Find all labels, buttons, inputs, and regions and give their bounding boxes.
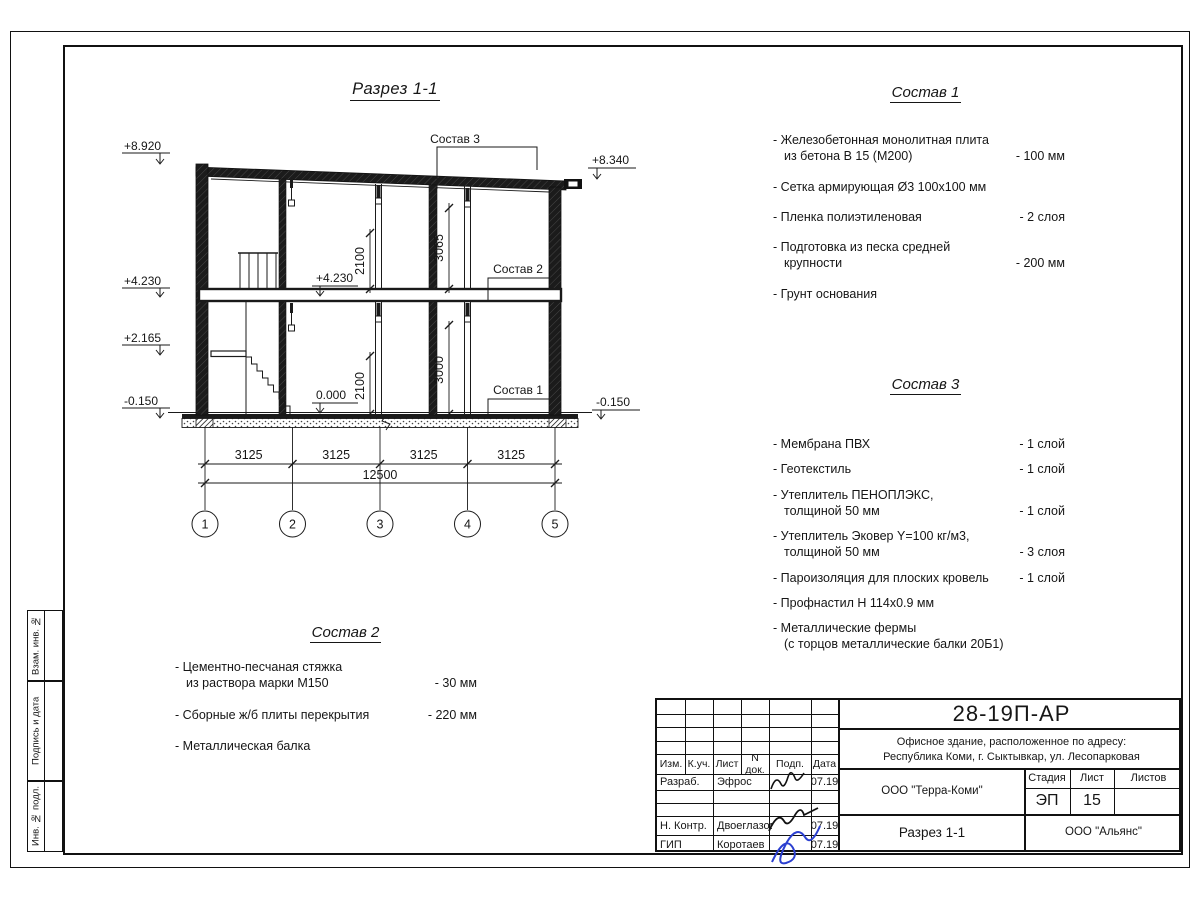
document-number: 28-19П-АР — [840, 700, 1183, 728]
list-item: - Железобетонная монолитная плита из бет… — [773, 132, 1065, 165]
row-role: Разраб. — [657, 774, 716, 790]
sostav2-heading: Состав 2 — [278, 624, 413, 643]
list-item: - Утеплитель ПЕНОПЛЭКС, толщиной 50 мм- … — [773, 487, 1065, 520]
list-item: - Профнастил Н 114х0.9 мм — [773, 595, 1065, 611]
list-item: - Геотекстиль- 1 слой — [773, 461, 1065, 477]
col-header-ndok: N док. — [741, 754, 769, 774]
section-title: Разрез 1-1 — [330, 80, 460, 101]
list-item: - Мембрана ПВХ- 1 слой — [773, 436, 1065, 452]
sostav1-heading: Состав 1 — [858, 84, 993, 103]
list-item: - Грунт основания — [773, 286, 1065, 302]
sostav2-list: - Цементно-песчаная стяжка из раствора м… — [175, 659, 477, 754]
list-item: - Пароизоляция для плоских кровель- 1 сл… — [773, 570, 1065, 586]
row-date: 07.19 — [811, 816, 838, 835]
list-item: - Пленка полиэтиленовая- 2 слоя — [773, 209, 1065, 225]
col-header-podp: Подп. — [769, 754, 811, 774]
design-org: ООО "Терра-Коми" — [840, 768, 1024, 814]
title-block: Изм. К.уч. Лист N док. Подп. Дата Разраб… — [655, 698, 1181, 852]
sheet-name: Разрез 1-1 — [840, 814, 1024, 850]
sheets-total — [1114, 788, 1183, 814]
col-header-list: Лист — [713, 754, 741, 774]
list-item: - Сборные ж/б плиты перекрытия- 220 мм — [175, 707, 477, 723]
sheets-header: Листов — [1114, 768, 1183, 788]
row-name: Двоеглазов — [714, 816, 772, 835]
list-item: - Цементно-песчаная стяжка из раствора м… — [175, 659, 477, 692]
row-name: Эфрос — [714, 774, 772, 790]
sostav1-list: - Железобетонная монолитная плита из бет… — [773, 132, 1065, 302]
list-item: - Утеплитель Эковер Y=100 кг/м3, толщино… — [773, 528, 1065, 561]
list-item: - Подготовка из песка средней крупности-… — [773, 239, 1065, 272]
sostav3-list: - Мембрана ПВХ- 1 слой - Геотекстиль- 1 … — [773, 436, 1065, 653]
stamp-vzam-inv: Взам. инв. № — [27, 610, 63, 681]
stamp-podpis-data: Подпись и дата — [27, 681, 63, 781]
col-header-kuch: К.уч. — [685, 754, 713, 774]
row-name: Коротаев — [714, 835, 772, 854]
stage-header: Стадия — [1024, 768, 1070, 788]
row-role: Н. Контр. — [657, 816, 716, 835]
row-date: 07.19 — [811, 774, 838, 790]
stage-value: ЭП — [1024, 788, 1070, 814]
section-title-text: Разрез 1-1 — [350, 80, 440, 101]
sheet-number: 15 — [1070, 788, 1114, 814]
list-item: - Металлическая балка — [175, 738, 477, 754]
list-item: - Металлические фермы (с торцов металлич… — [773, 620, 1065, 653]
row-role: ГИП — [657, 835, 716, 854]
stamp-inv-podl: Инв. № подл. — [27, 781, 63, 852]
project-address: Офисное здание, расположенное по адресу:… — [840, 730, 1183, 773]
col-header-data: Дата — [811, 754, 838, 774]
sheet-header: Лист — [1070, 768, 1114, 788]
contractor-org: ООО "Альянс" — [1024, 814, 1183, 850]
sostav3-heading: Состав 3 — [858, 376, 993, 395]
list-item: - Сетка армирующая Ø3 100х100 мм — [773, 179, 1065, 195]
drawing-sheet: Разрез 1-1 Состав 1 Состав 3 Состав 2 - … — [0, 0, 1200, 900]
row-date: 07.19 — [811, 835, 838, 854]
col-header-izm: Изм. — [657, 754, 685, 774]
